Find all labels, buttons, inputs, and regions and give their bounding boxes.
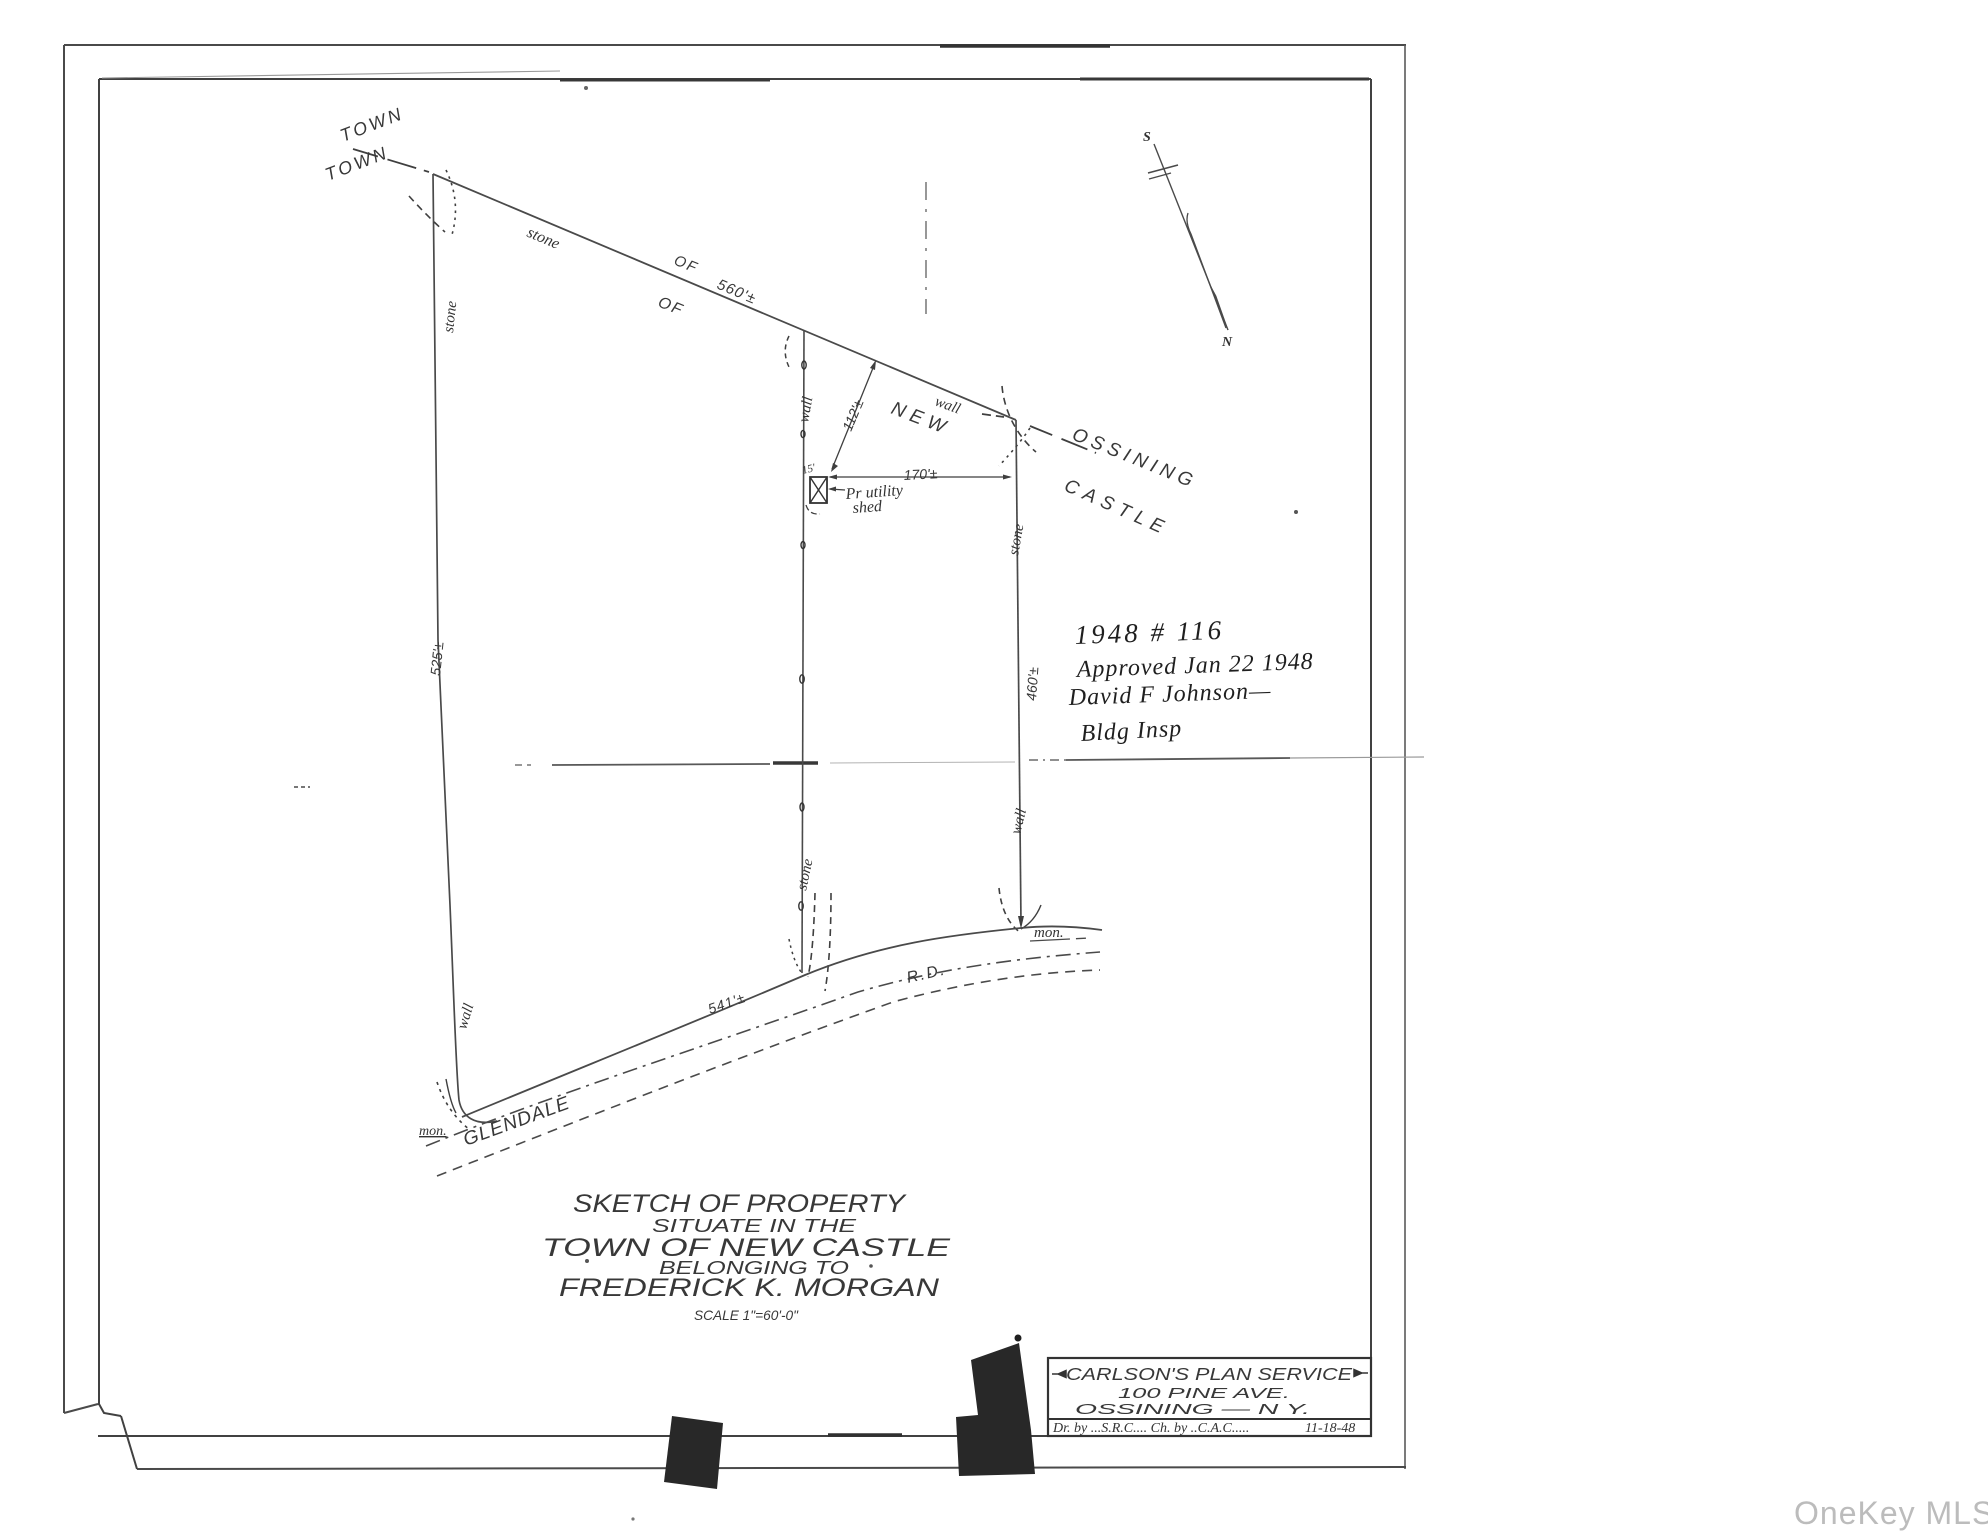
svg-text:shed: shed xyxy=(852,498,883,517)
svg-text:Bldg Insp: Bldg Insp xyxy=(1080,716,1183,747)
svg-text:CASTLE: CASTLE xyxy=(1061,475,1173,540)
svg-text:wall: wall xyxy=(796,395,816,423)
svg-text:Dr. by ...S.R.C.... Ch. by ..: Dr. by ...S.R.C.... Ch. by ..C.A.C..... xyxy=(1052,1421,1249,1436)
svg-text:wall: wall xyxy=(455,1002,478,1031)
svg-text:525'±: 525'± xyxy=(427,641,446,677)
svg-text:170'±: 170'± xyxy=(903,465,938,483)
svg-text:R.D.: R.D. xyxy=(905,961,948,987)
svg-text:OF: OF xyxy=(672,252,701,277)
svg-text:SCALE 1"=60'-0": SCALE 1"=60'-0" xyxy=(694,1307,799,1323)
svg-text:100 PINE AVE.: 100 PINE AVE. xyxy=(1118,1385,1290,1402)
svg-text:TOWN: TOWN xyxy=(337,103,406,146)
svg-text:S: S xyxy=(1143,130,1151,145)
svg-text:CARLSON'S PLAN SERVICE: CARLSON'S PLAN SERVICE xyxy=(1066,1364,1352,1384)
svg-text:OF: OF xyxy=(656,294,687,320)
svg-text:Approved Jan 22 1948: Approved Jan 22 1948 xyxy=(1074,649,1314,683)
svg-text:stone: stone xyxy=(794,857,816,892)
svg-text:15': 15' xyxy=(801,462,818,477)
svg-text:mon.: mon. xyxy=(419,1124,447,1139)
svg-text:SKETCH OF PROPERTY: SKETCH OF PROPERTY xyxy=(573,1190,908,1218)
svg-text:stone: stone xyxy=(1006,522,1027,556)
svg-text:1948 # 116: 1948 # 116 xyxy=(1074,615,1224,650)
svg-text:N: N xyxy=(1221,335,1233,350)
svg-text:112'±: 112'± xyxy=(839,397,867,434)
svg-text:TOWN: TOWN xyxy=(322,142,391,185)
svg-text:OSSINING — N Y.: OSSINING — N Y. xyxy=(1075,1401,1310,1418)
svg-text:mon.: mon. xyxy=(1034,925,1064,941)
svg-text:OneKey MLS: OneKey MLS xyxy=(1794,1495,1988,1531)
svg-text:David F Johnson—: David F Johnson— xyxy=(1067,678,1271,711)
svg-text:stone: stone xyxy=(524,224,562,253)
svg-text:SITUATE IN THE: SITUATE IN THE xyxy=(652,1216,857,1236)
svg-text:stone: stone xyxy=(441,300,460,334)
svg-text:541'±: 541'± xyxy=(706,989,748,1017)
svg-text:FREDERICK K. MORGAN: FREDERICK K. MORGAN xyxy=(559,1274,940,1302)
svg-text:11-18-48: 11-18-48 xyxy=(1305,1421,1355,1436)
svg-text:wall: wall xyxy=(1008,807,1030,836)
svg-text:460'±: 460'± xyxy=(1023,666,1041,701)
